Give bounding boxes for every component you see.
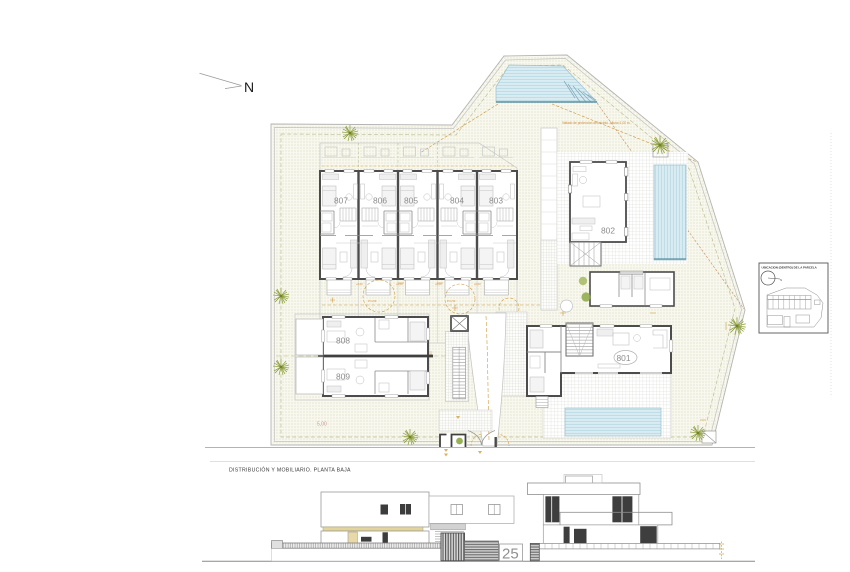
svg-text:DISTRIBUCIÓN Y MOBILIARIO. PLA: DISTRIBUCIÓN Y MOBILIARIO. PLANTA BAJA [229, 467, 351, 474]
svg-text:806: 806 [373, 196, 387, 206]
svg-text:5,00: 5,00 [317, 422, 327, 428]
svg-text:+0,00: +0,00 [435, 282, 442, 286]
svg-text:802: 802 [601, 226, 615, 236]
svg-text:805: 805 [404, 196, 418, 206]
svg-text:+0,00: +0,00 [356, 282, 363, 286]
svg-text:809: 809 [336, 372, 350, 382]
svg-text:25: 25 [502, 546, 519, 563]
svg-text:N: N [780, 278, 782, 282]
svg-text:+0,00: +0,00 [474, 282, 481, 286]
svg-text:UBICACION (DENTRO) DE LA PARCE: UBICACION (DENTRO) DE LA PARCELA [762, 266, 818, 270]
svg-text:Vallado de proteccion del reci: Vallado de proteccion del recinto. Altur… [562, 121, 631, 125]
svg-text:804: 804 [450, 196, 464, 206]
svg-text:P=1,50: P=1,50 [447, 299, 456, 303]
svg-text:803: 803 [489, 196, 503, 206]
svg-text:807: 807 [334, 196, 348, 206]
svg-text:P=1,50: P=1,50 [368, 299, 377, 303]
svg-text:N: N [244, 79, 254, 95]
svg-text:801: 801 [617, 353, 631, 363]
svg-text:+0,00: +0,00 [396, 282, 403, 286]
svg-text:808: 808 [336, 336, 350, 346]
